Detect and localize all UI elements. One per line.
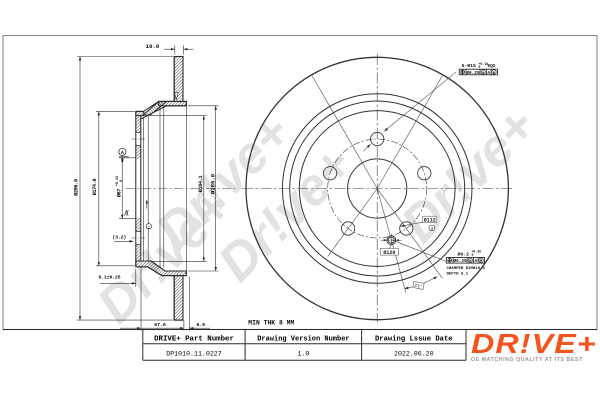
svg-text:Drawing Version Number: Drawing Version Number bbox=[257, 335, 349, 343]
svg-text:Ø120: Ø120 bbox=[383, 249, 395, 256]
svg-text:6.5: 6.5 bbox=[196, 322, 205, 328]
svg-text:(3.2): (3.2) bbox=[113, 235, 127, 241]
svg-text:3: 3 bbox=[430, 226, 433, 232]
svg-text:Ø112: Ø112 bbox=[424, 216, 436, 223]
svg-text:EQS: EQS bbox=[488, 64, 496, 69]
svg-text:Ø164.1: Ø164.1 bbox=[197, 175, 204, 192]
svg-text:M: M bbox=[493, 72, 495, 76]
svg-text:0: 0 bbox=[120, 180, 124, 182]
svg-text:Drawing Lssue Date: Drawing Lssue Date bbox=[375, 335, 453, 343]
svg-text:Ø9.2: Ø9.2 bbox=[458, 250, 470, 257]
svg-text:0: 0 bbox=[472, 253, 474, 257]
svg-text:A: A bbox=[487, 71, 490, 76]
svg-text:67.0: 67.0 bbox=[154, 322, 166, 328]
svg-text:A: A bbox=[121, 150, 124, 156]
svg-text:Ø67: Ø67 bbox=[115, 189, 122, 198]
svg-text:MIN THK 8 MM: MIN THK 8 MM bbox=[248, 320, 294, 327]
svg-text:Ø174.0: Ø174.0 bbox=[91, 178, 98, 195]
svg-text:10.0: 10.0 bbox=[146, 43, 160, 50]
svg-text:1.0: 1.0 bbox=[297, 350, 309, 357]
svg-text:5-Ø15: 5-Ø15 bbox=[462, 62, 477, 69]
svg-text:Ø0.25: Ø0.25 bbox=[466, 71, 480, 76]
svg-text:A: A bbox=[474, 259, 477, 264]
svg-text:6.1±0.25: 6.1±0.25 bbox=[98, 274, 120, 280]
svg-text:CHAMFER DIMØ10.3: CHAMFER DIMØ10.3 bbox=[447, 266, 486, 271]
svg-text:2022.06.20: 2022.06.20 bbox=[394, 350, 434, 357]
svg-text:DEPTH 5.1: DEPTH 5.1 bbox=[447, 273, 469, 277]
svg-text:DRIVE+ Part Number: DRIVE+ Part Number bbox=[154, 335, 234, 343]
svg-text:Ø0.25: Ø0.25 bbox=[454, 259, 468, 264]
svg-text:DP1010.11.0227: DP1010.11.0227 bbox=[166, 350, 221, 357]
svg-text:Ø296.0: Ø296.0 bbox=[72, 179, 79, 196]
svg-text:1: 1 bbox=[147, 225, 150, 230]
svg-text:M: M bbox=[469, 260, 471, 264]
svg-text:M: M bbox=[480, 260, 482, 264]
svg-text:0: 0 bbox=[479, 65, 481, 69]
svg-text:M: M bbox=[482, 72, 484, 76]
svg-text:Ø186.0: Ø186.0 bbox=[209, 173, 216, 194]
